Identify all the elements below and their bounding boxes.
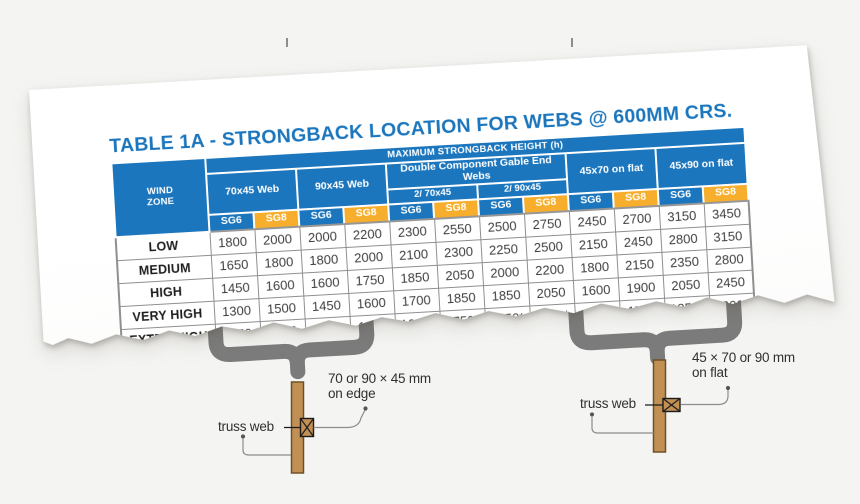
leader-dot bbox=[241, 434, 245, 438]
leader-dot bbox=[590, 412, 594, 416]
strongback-on-flat-symbol bbox=[663, 399, 680, 412]
leader-line bbox=[314, 410, 366, 428]
leader-dot bbox=[726, 386, 730, 390]
diagram-graphics bbox=[0, 0, 860, 504]
strongback-on-edge-symbol bbox=[301, 419, 314, 437]
document-scan: TABLE 1A - STRONGBACK LOCATION FOR WEBS … bbox=[0, 0, 860, 504]
leader-line bbox=[243, 439, 291, 455]
leader-dot bbox=[363, 406, 367, 410]
size-label-on-flat: 45 × 70 or 90 mm on flat bbox=[692, 351, 795, 381]
leader-line bbox=[592, 417, 654, 433]
size-label-on-edge: 70 or 90 × 45 mm on edge bbox=[328, 372, 431, 402]
truss-web-label: truss web bbox=[218, 420, 274, 435]
truss-web-label: truss web bbox=[580, 397, 636, 412]
leader-line bbox=[681, 390, 728, 405]
